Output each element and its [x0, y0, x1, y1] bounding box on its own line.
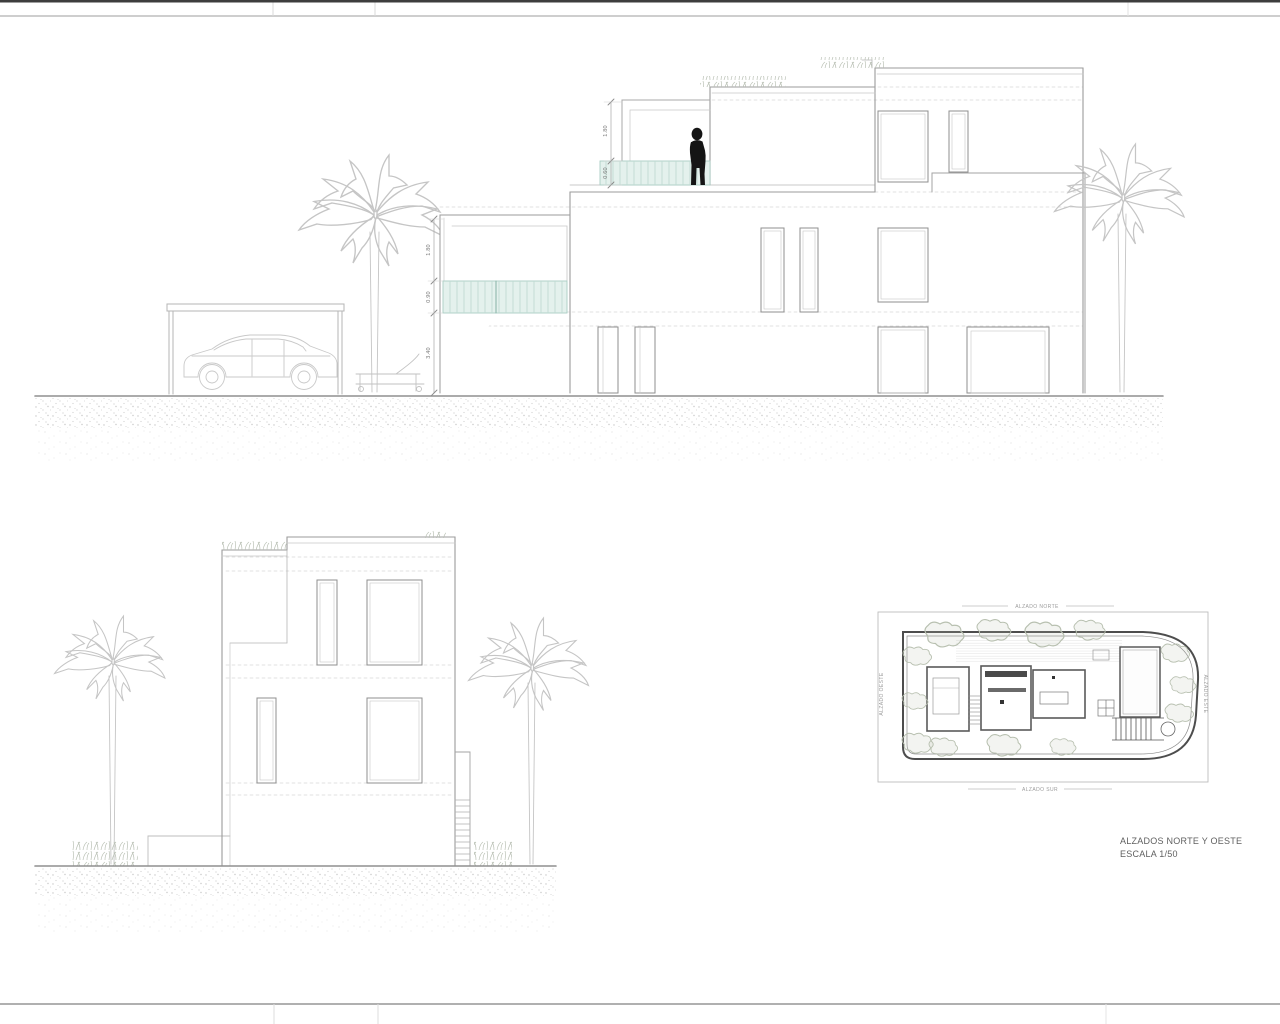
roof-plants [424, 530, 446, 538]
palm-tree [55, 616, 165, 864]
plan-label-west: ALZADO OESTE [879, 672, 885, 715]
north-elevation-drawing [35, 530, 589, 932]
garden-wall [148, 836, 230, 866]
palm-tree [1055, 144, 1185, 392]
car-outline [184, 335, 337, 390]
sheet-title-line1: ALZADOS NORTE Y OESTE [1120, 835, 1242, 848]
site-plan-inset: ALZADO NORTE ALZADO SUR ALZADO ESTE ALZA… [878, 604, 1208, 793]
plan-label-east: ALZADO ESTE [1202, 675, 1208, 714]
window [761, 228, 818, 312]
west-elevation-drawing: 1.80 0.60 1.80 0.90 3.40 [35, 57, 1184, 462]
dim-label: 0.60 [603, 167, 609, 179]
drawing-sheet-svg: 1.80 0.60 1.80 0.90 3.40 [0, 0, 1280, 1024]
bush [72, 840, 138, 866]
sheet-footer-band [0, 1004, 1280, 1024]
exterior-stair [455, 752, 470, 866]
roof-plants [222, 541, 288, 550]
window [878, 111, 1049, 393]
window [257, 580, 422, 783]
dim-label: 0.90 [426, 291, 432, 303]
dim-label: 1.80 [426, 244, 432, 256]
bush [474, 840, 512, 866]
palm-tree [469, 618, 589, 864]
drawing-sheet: 1.80 0.60 1.80 0.90 3.40 [0, 0, 1280, 1024]
balcony-railing [443, 281, 567, 313]
lounge-chair [356, 354, 424, 392]
sheet-title-line2: ESCALA 1/50 [1120, 848, 1242, 861]
plan-label-south: ALZADO SUR [1022, 787, 1058, 793]
doorway [598, 327, 655, 393]
dim-label: 3.40 [426, 347, 432, 359]
sheet-header-band [0, 0, 1280, 16]
palm-tree [299, 155, 443, 392]
sheet-title: ALZADOS NORTE Y OESTE ESCALA 1/50 [1120, 835, 1242, 861]
ground-line [35, 396, 1163, 462]
roof-plants [700, 57, 884, 87]
dim-label: 1.80 [603, 125, 609, 137]
plan-label-north: ALZADO NORTE [1015, 604, 1059, 610]
ground-line [35, 866, 556, 932]
